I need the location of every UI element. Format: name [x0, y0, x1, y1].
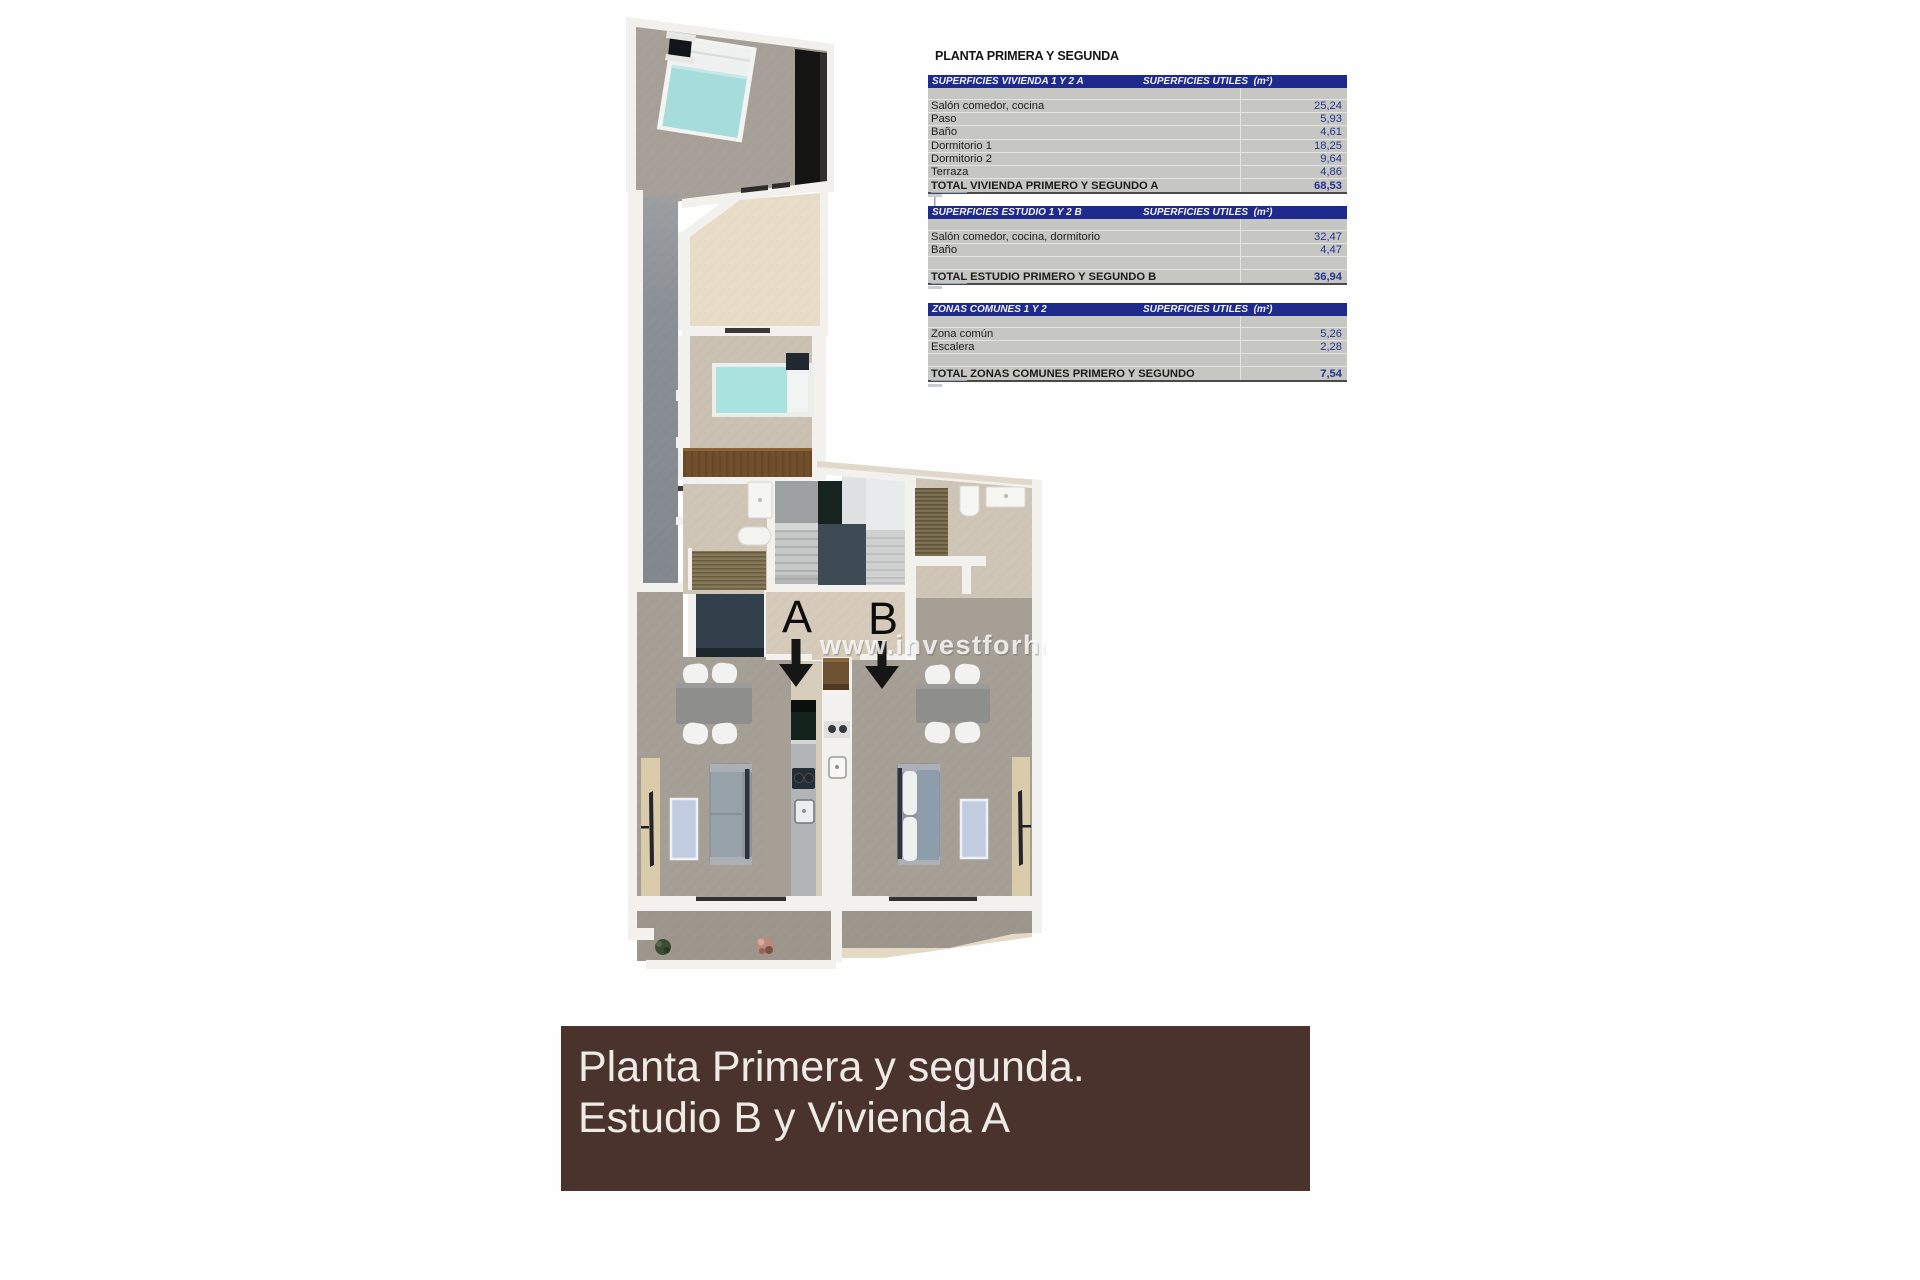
svg-text:www.investforhome.co: www.investforhome.co	[819, 630, 1145, 660]
svg-text:A: A	[782, 591, 812, 642]
